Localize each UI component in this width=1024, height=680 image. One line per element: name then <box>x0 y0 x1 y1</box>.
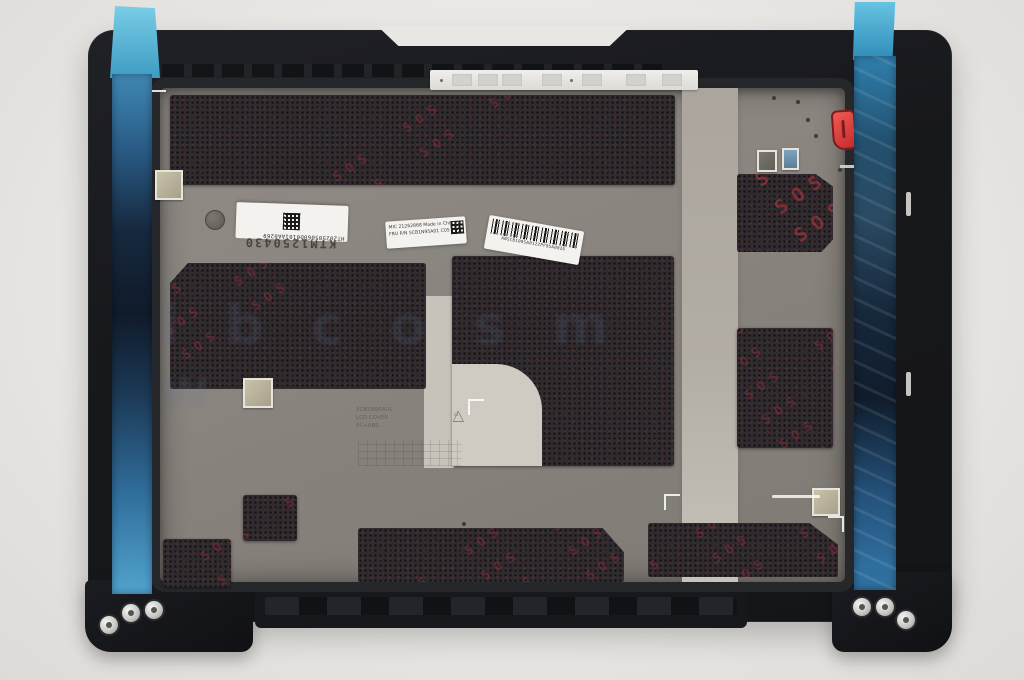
mylar-patch-right-top: SOS SOS SOS SOS SOS SOS SOS SOS SOS SOS … <box>737 174 833 252</box>
sos-print: SOS SOS SOS SOS SOS SOS SOS SOS SOS SOS … <box>737 174 833 252</box>
rim-slot-mark <box>906 372 911 396</box>
hinge-screw <box>897 611 915 629</box>
emi-pad <box>155 170 183 200</box>
alignment-corner-mark <box>828 516 844 532</box>
hinge-screw <box>876 598 894 616</box>
screw-boss-dot <box>814 134 818 138</box>
molded-line2: LCD COVER <box>356 414 468 422</box>
stamped-part-code: KTM1250430 <box>232 235 348 251</box>
screw-boss-dot <box>796 100 800 104</box>
screw-hole <box>128 610 134 616</box>
mic-label: MIC 21262868 Made in China FRU P/N 5CB1N… <box>385 216 467 249</box>
molded-line3: PC+ABS <box>356 422 468 430</box>
blue-tape-left-flap <box>110 6 160 78</box>
molded-line1: 5CB1N95A01 <box>356 406 468 414</box>
alignment-dash-mark <box>772 495 820 498</box>
emi-pad <box>812 488 840 516</box>
qr-code-icon <box>283 213 301 231</box>
alignment-corner-mark <box>150 90 166 106</box>
screw-boss-dot <box>772 96 776 100</box>
top-edge-notch <box>372 26 636 46</box>
embossed-square <box>626 74 646 86</box>
sos-print: SOS SOS SOS SOS SOS SOS SOS SOS SOS SOS … <box>737 328 833 448</box>
emi-pad <box>243 378 273 408</box>
hinge-screw <box>122 604 140 622</box>
rivet-dot <box>570 79 573 82</box>
embossed-square <box>452 74 472 86</box>
mylar-patch-top: SOS SOS SOS SOS SOS SOS SOS SOS SOS SOS … <box>170 95 675 185</box>
rivet-dot <box>440 79 443 82</box>
embossed-square <box>662 74 682 86</box>
sos-print: SOS SOS SOS SOS SOS SOS SOS SOS SOS SOS … <box>648 523 838 577</box>
alignment-corner-mark <box>468 399 484 415</box>
alignment-corner-mark <box>664 494 680 510</box>
hinge-screw <box>100 616 118 634</box>
round-boss <box>205 210 225 230</box>
product-photo: SOS SOS SOS SOS SOS SOS SOS SOS SOS SOS … <box>0 0 1024 680</box>
tape-crease-texture <box>854 56 896 590</box>
molded-info-area: 5CB1N95A01 LCD COVER PC+ABS △ 41 <box>356 406 468 470</box>
molded-dot-grid <box>358 440 462 466</box>
sos-print: SOS SOS SOS SOS SOS SOS SOS SOS SOS SOS … <box>358 528 624 582</box>
embossed-square <box>582 74 602 86</box>
screw-boss-dot <box>462 522 466 526</box>
blue-tape-left <box>112 74 152 594</box>
screw-hole <box>106 622 112 628</box>
embossed-square <box>502 74 522 86</box>
sos-print: SOS SOS SOS SOS SOS SOS SOS SOS SOS SOS … <box>243 495 297 541</box>
screw-hole <box>859 604 865 610</box>
recycle-triangle-number: 41 <box>453 412 459 420</box>
photo-watermark: i b c o s m w <box>160 294 680 366</box>
mylar-patch-right-mid: SOS SOS SOS SOS SOS SOS SOS SOS SOS SOS … <box>737 328 833 448</box>
rim-slot-mark <box>906 192 911 216</box>
sos-print: SOS SOS SOS SOS SOS SOS SOS SOS SOS SOS … <box>170 95 675 185</box>
screw-boss-dot <box>806 118 810 122</box>
clip-slot <box>841 120 845 138</box>
hinge-screw <box>853 598 871 616</box>
hinge-strip-teeth <box>265 597 737 615</box>
bare-metal-band <box>682 88 738 582</box>
screw-hole <box>882 604 888 610</box>
embossed-square <box>478 74 498 86</box>
blue-tape-right <box>854 56 896 590</box>
screw-hole <box>903 617 909 623</box>
emi-pad-blue <box>782 148 799 170</box>
embossed-square <box>542 74 562 86</box>
mylar-patch-small-2: SOS SOS SOS SOS SOS SOS SOS SOS SOS SOS … <box>163 539 231 587</box>
mylar-patch-bottom-right: SOS SOS SOS SOS SOS SOS SOS SOS SOS SOS … <box>648 523 838 577</box>
emi-pad-dark <box>757 150 777 172</box>
sos-print: SOS SOS SOS SOS SOS SOS SOS SOS SOS SOS … <box>163 539 231 587</box>
hinge-screw <box>145 601 163 619</box>
qr-code-icon <box>450 220 464 234</box>
mylar-patch-small-1: SOS SOS SOS SOS SOS SOS SOS SOS SOS SOS … <box>243 495 297 541</box>
mylar-patch-bottom: SOS SOS SOS SOS SOS SOS SOS SOS SOS SOS … <box>358 528 624 582</box>
blue-tape-right-flap <box>852 2 898 60</box>
bottom-hinge-strip <box>255 590 747 628</box>
screw-boss-dot <box>838 168 842 172</box>
screw-hole <box>151 607 157 613</box>
antenna-metal-strip <box>430 70 698 90</box>
